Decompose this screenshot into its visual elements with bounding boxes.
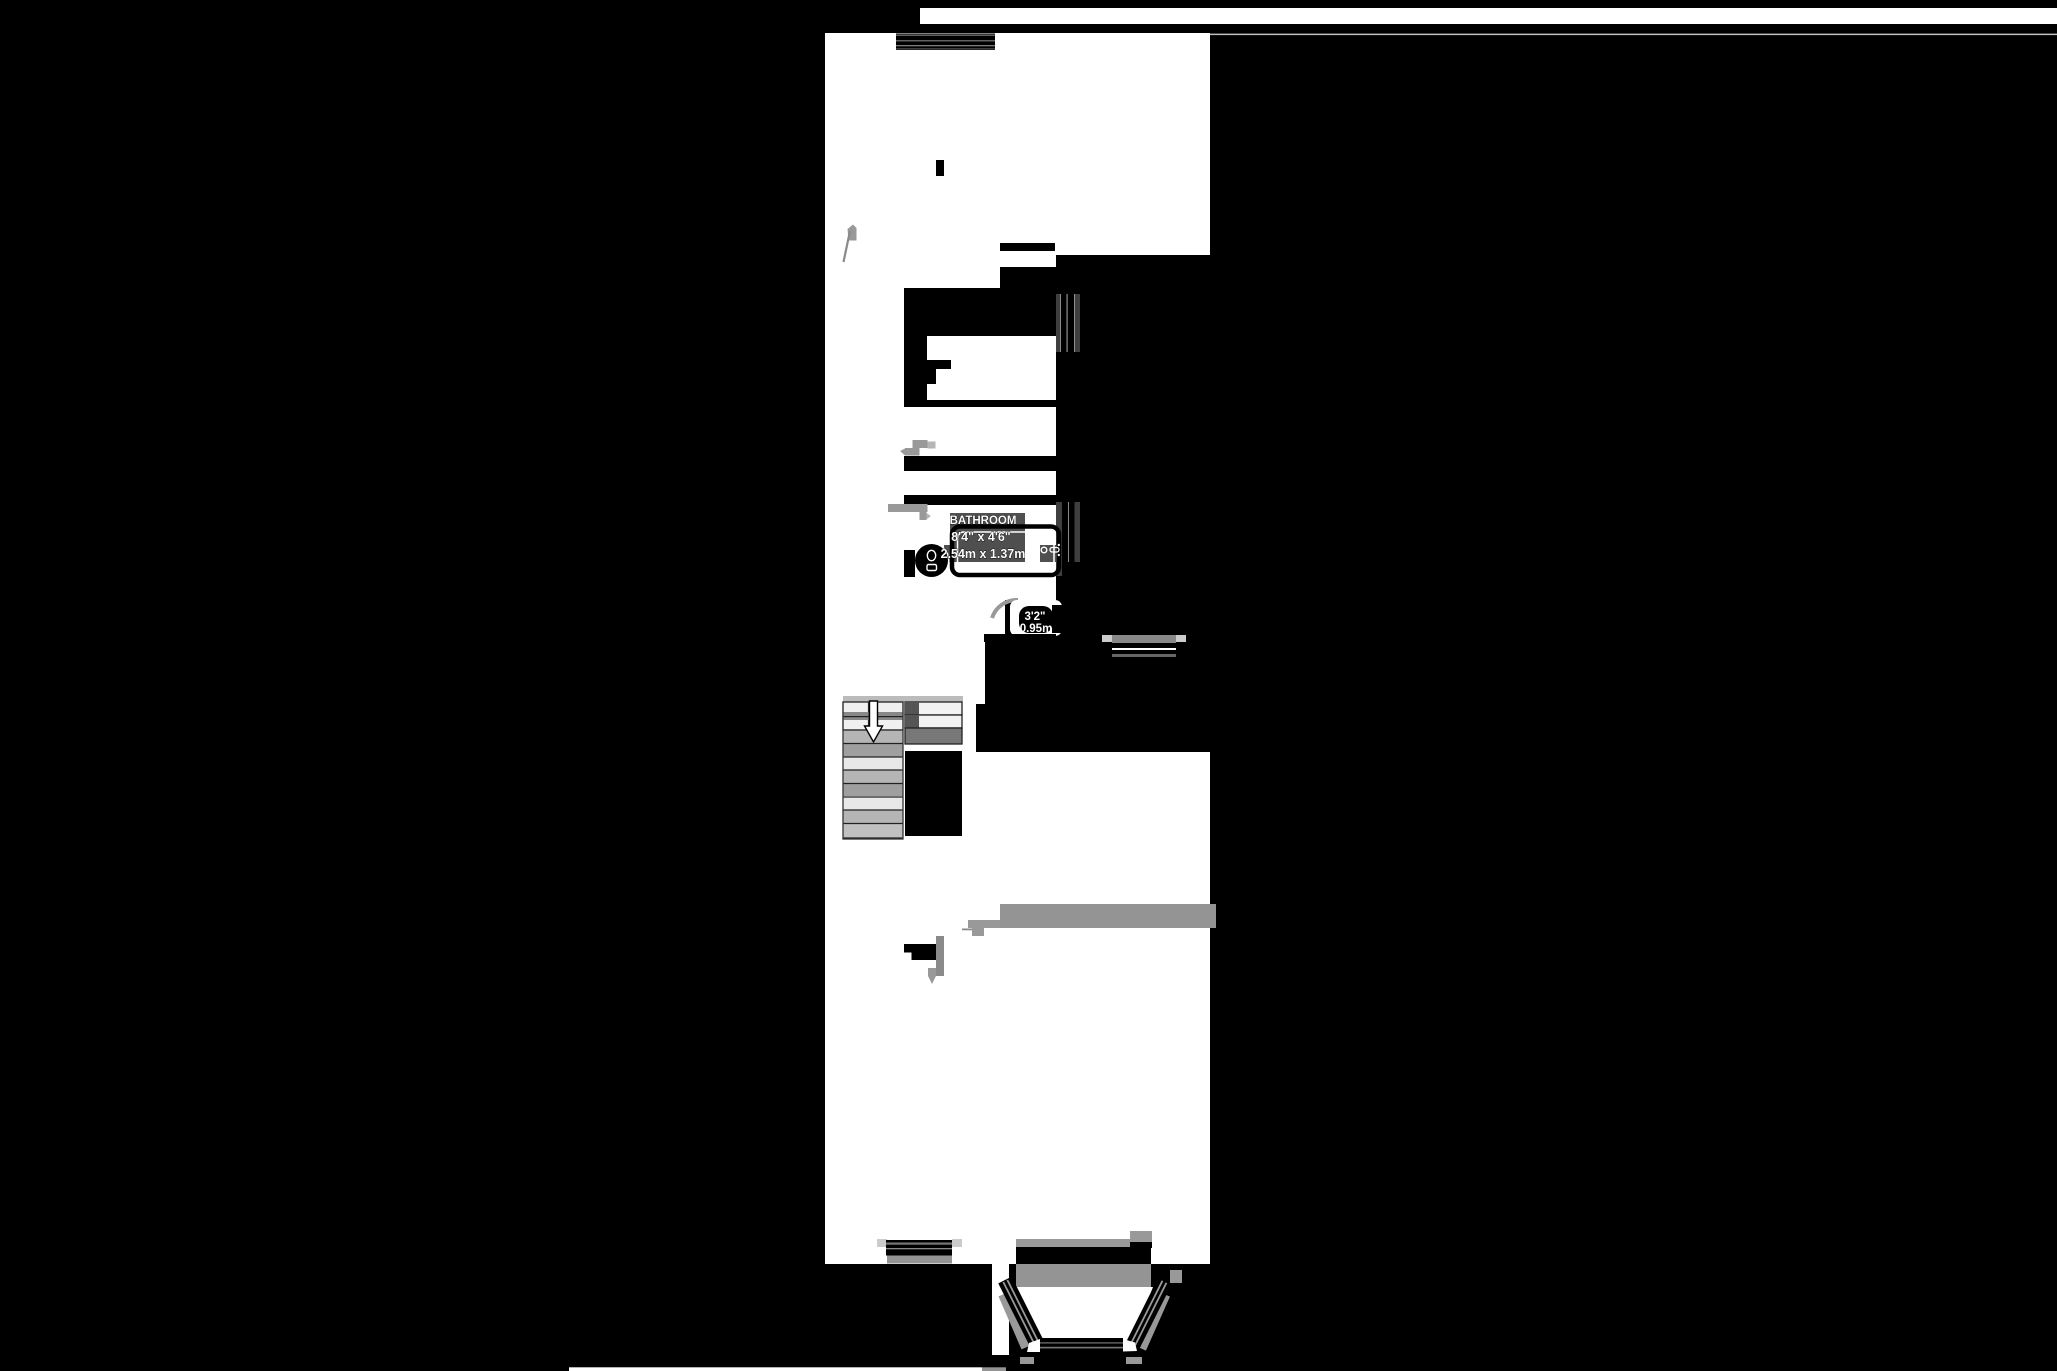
svg-text:0.95m: 0.95m <box>1020 623 1053 635</box>
svg-text:3'2": 3'2" <box>1025 611 1046 623</box>
svg-text:BATHROOM: BATHROOM <box>950 515 1017 527</box>
svg-text:8'4" x 4'6": 8'4" x 4'6" <box>951 530 1011 544</box>
svg-text:2.54m x 1.37m: 2.54m x 1.37m <box>941 547 1026 561</box>
